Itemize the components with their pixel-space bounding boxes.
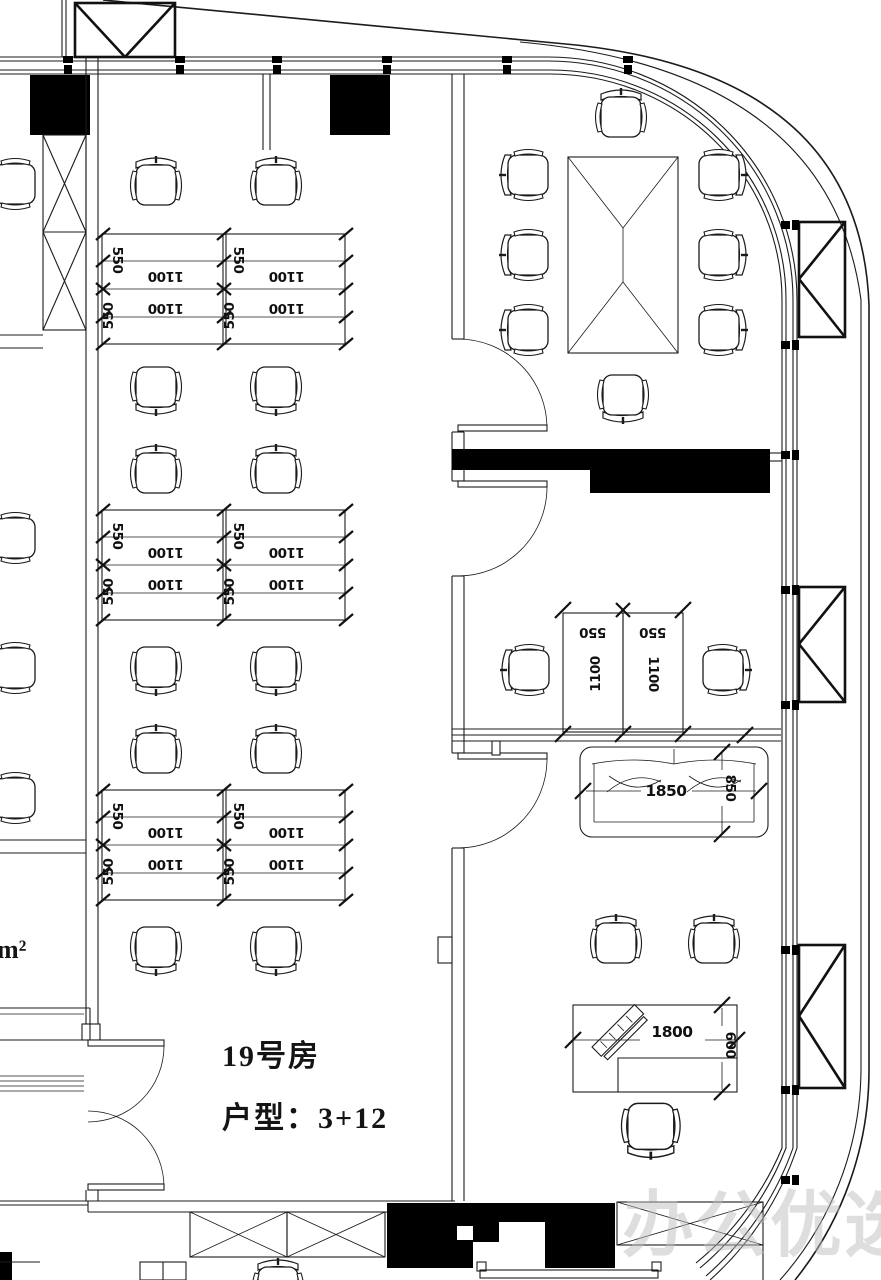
sofa: 1850 850 bbox=[575, 744, 768, 842]
chair bbox=[499, 150, 548, 201]
dim-label: 1100 bbox=[269, 856, 305, 872]
dim-label: 550 bbox=[230, 523, 246, 550]
private-office: 1800 600 bbox=[565, 914, 745, 1160]
desk-cluster bbox=[96, 504, 353, 626]
chair bbox=[131, 444, 182, 493]
column-top-left bbox=[30, 75, 90, 135]
dim-label: 1100 bbox=[269, 824, 305, 840]
bottom-wall bbox=[0, 1201, 455, 1212]
dim-label: 1100 bbox=[269, 544, 305, 560]
chair bbox=[131, 156, 182, 205]
dim-label: 1100 bbox=[148, 544, 184, 560]
facade-bay-right-2 bbox=[799, 587, 845, 702]
chair bbox=[251, 724, 302, 773]
chair bbox=[251, 156, 302, 205]
chair bbox=[0, 513, 35, 564]
facade-bay-right-1 bbox=[799, 222, 845, 337]
chair bbox=[0, 159, 35, 210]
door-middle-office bbox=[458, 481, 547, 576]
watermark: 办公优选 bbox=[622, 1186, 881, 1266]
laptop-icon bbox=[592, 1005, 649, 1062]
chair bbox=[251, 367, 302, 416]
chair bbox=[689, 914, 740, 963]
dim-label: 1100 bbox=[148, 824, 184, 840]
dim-label: 550 bbox=[230, 247, 246, 274]
dim-label: 600 bbox=[722, 1032, 738, 1059]
middle-office: 550 550 1100 1100 bbox=[500, 602, 752, 742]
chair bbox=[703, 645, 752, 696]
dim-label: 1100 bbox=[269, 576, 305, 592]
dim-label: 1100 bbox=[148, 576, 184, 592]
room-number-label: 19号房 bbox=[222, 1040, 320, 1073]
conference-room bbox=[499, 88, 748, 424]
facade-bay-top bbox=[75, 3, 175, 57]
dim-label: 550 bbox=[101, 303, 117, 330]
chair bbox=[0, 773, 35, 824]
dim-label: 550 bbox=[230, 803, 246, 830]
dim-label: 1100 bbox=[588, 656, 604, 692]
chair bbox=[251, 927, 302, 976]
unit-type-label: 户型：3+12 bbox=[222, 1102, 388, 1135]
area-label-partial: 0m² bbox=[0, 935, 27, 964]
dim-label: 550 bbox=[109, 523, 125, 550]
dim-label: 550 bbox=[580, 624, 607, 640]
dim-label: 550 bbox=[109, 803, 125, 830]
dim-label: 550 bbox=[101, 579, 117, 606]
chair bbox=[598, 375, 649, 424]
floor-plan-drawing: 550 550 1100 1100 1850 850 bbox=[0, 0, 881, 1280]
chair bbox=[131, 367, 182, 416]
desk-cluster bbox=[96, 784, 353, 906]
chair bbox=[699, 150, 748, 201]
room19-workstations: 550 1100 550 1100 550 1100 550 1100 550 … bbox=[96, 156, 353, 976]
dim-label: 550 bbox=[222, 859, 238, 886]
dim-label: 1100 bbox=[148, 300, 184, 316]
dim-label: 1100 bbox=[269, 268, 305, 284]
dim-label: 1100 bbox=[148, 268, 184, 284]
facade-bay-right-3 bbox=[799, 945, 845, 1088]
dim-label: 1100 bbox=[269, 300, 305, 316]
central-partition-wall bbox=[438, 74, 464, 1201]
chair bbox=[131, 647, 182, 696]
door-private-office bbox=[458, 753, 547, 848]
chair bbox=[131, 927, 182, 976]
chair bbox=[0, 643, 35, 694]
chair bbox=[253, 1258, 304, 1280]
dim-label: 550 bbox=[109, 247, 125, 274]
chair bbox=[591, 914, 642, 963]
chair bbox=[131, 724, 182, 773]
floor-plan-page: 550 550 1100 1100 1850 850 bbox=[0, 0, 881, 1280]
column-top-mid bbox=[330, 75, 390, 135]
dim-label: 1100 bbox=[148, 856, 184, 872]
dim-label: 550 bbox=[640, 624, 667, 640]
dim-label: 1850 bbox=[645, 782, 687, 800]
dim-label: 1800 bbox=[651, 1023, 693, 1041]
chair bbox=[499, 230, 548, 281]
dim-label: 550 bbox=[101, 859, 117, 886]
chair bbox=[251, 647, 302, 696]
desk-cluster bbox=[96, 228, 353, 350]
double-door bbox=[88, 1040, 164, 1190]
chair bbox=[699, 305, 748, 356]
chair bbox=[499, 305, 548, 356]
dim-label: 850 bbox=[722, 775, 738, 802]
conference-table bbox=[568, 157, 678, 353]
office-chair bbox=[621, 1103, 680, 1159]
chair bbox=[699, 230, 748, 281]
chair bbox=[251, 444, 302, 493]
chair bbox=[596, 88, 647, 137]
dim-label: 1100 bbox=[645, 656, 661, 692]
dim-label: 550 bbox=[222, 579, 238, 606]
dim-label: 550 bbox=[222, 303, 238, 330]
chair bbox=[500, 645, 549, 696]
